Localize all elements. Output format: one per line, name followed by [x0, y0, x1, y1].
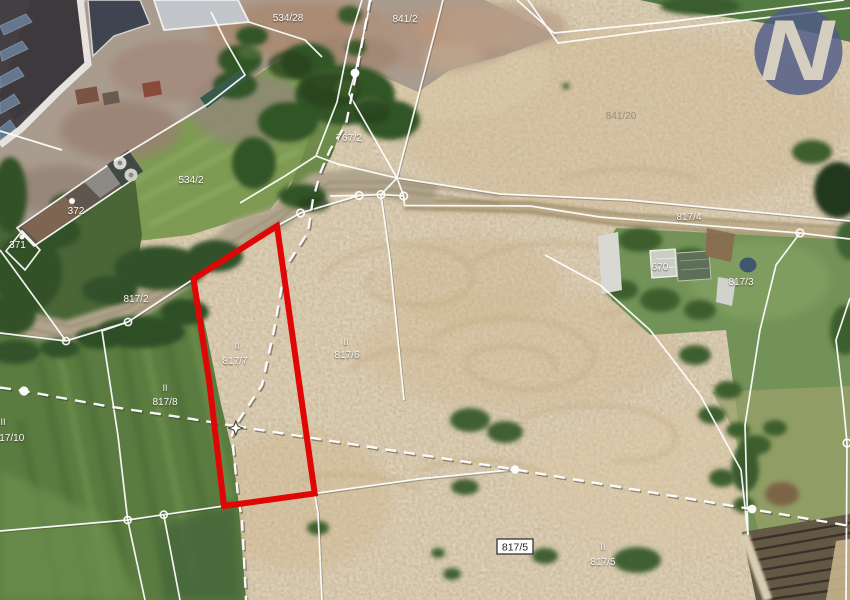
svg-text:841/2: 841/2 — [392, 14, 417, 25]
svg-text:II: II — [162, 383, 167, 393]
svg-text:II: II — [234, 341, 239, 351]
svg-text:817/4: 817/4 — [676, 212, 701, 223]
svg-text:II: II — [343, 337, 348, 347]
svg-text:817/2: 817/2 — [123, 294, 148, 305]
svg-text:817/8: 817/8 — [152, 397, 177, 408]
svg-text:817/3: 817/3 — [728, 277, 753, 288]
svg-text:817/10: 817/10 — [0, 433, 25, 444]
svg-text:817/5: 817/5 — [502, 542, 528, 554]
svg-text:372: 372 — [68, 206, 85, 217]
svg-text:II: II — [0, 417, 5, 427]
svg-text:534/28: 534/28 — [273, 13, 304, 24]
svg-text:841/20: 841/20 — [606, 111, 637, 122]
svg-text:534/2: 534/2 — [178, 175, 203, 186]
svg-text:817/7: 817/7 — [222, 356, 247, 367]
svg-text:817/5: 817/5 — [590, 557, 615, 568]
svg-text:817/6: 817/6 — [334, 350, 359, 361]
svg-text:371: 371 — [9, 240, 26, 251]
svg-text:670: 670 — [652, 262, 669, 273]
svg-text:II: II — [600, 542, 605, 552]
svg-text:767/2: 767/2 — [336, 132, 362, 144]
svg-text:N: N — [760, 3, 836, 99]
